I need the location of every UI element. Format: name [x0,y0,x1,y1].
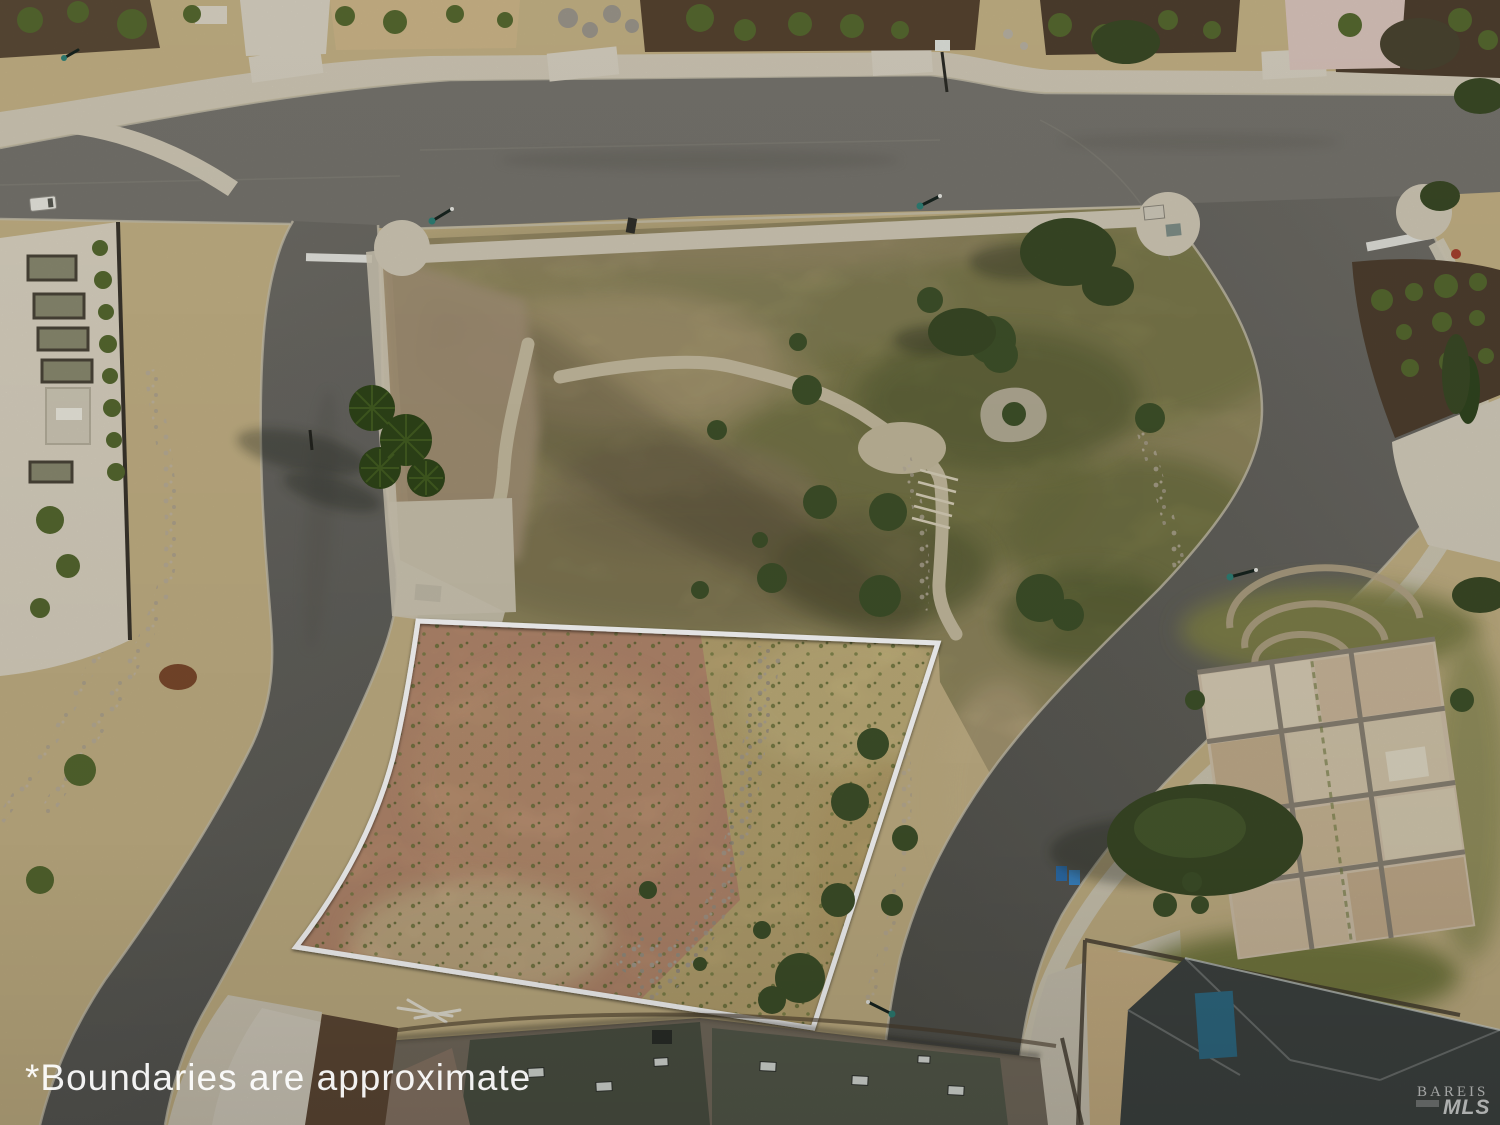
photo-vignette [0,0,1500,1125]
aerial-photo: *Boundaries are approximate BAREIS MLS [0,0,1500,1125]
watermark-bar [1416,1100,1439,1107]
disclaimer-text: *Boundaries are approximate [25,1057,531,1098]
watermark-sub: MLS [1443,1096,1490,1119]
